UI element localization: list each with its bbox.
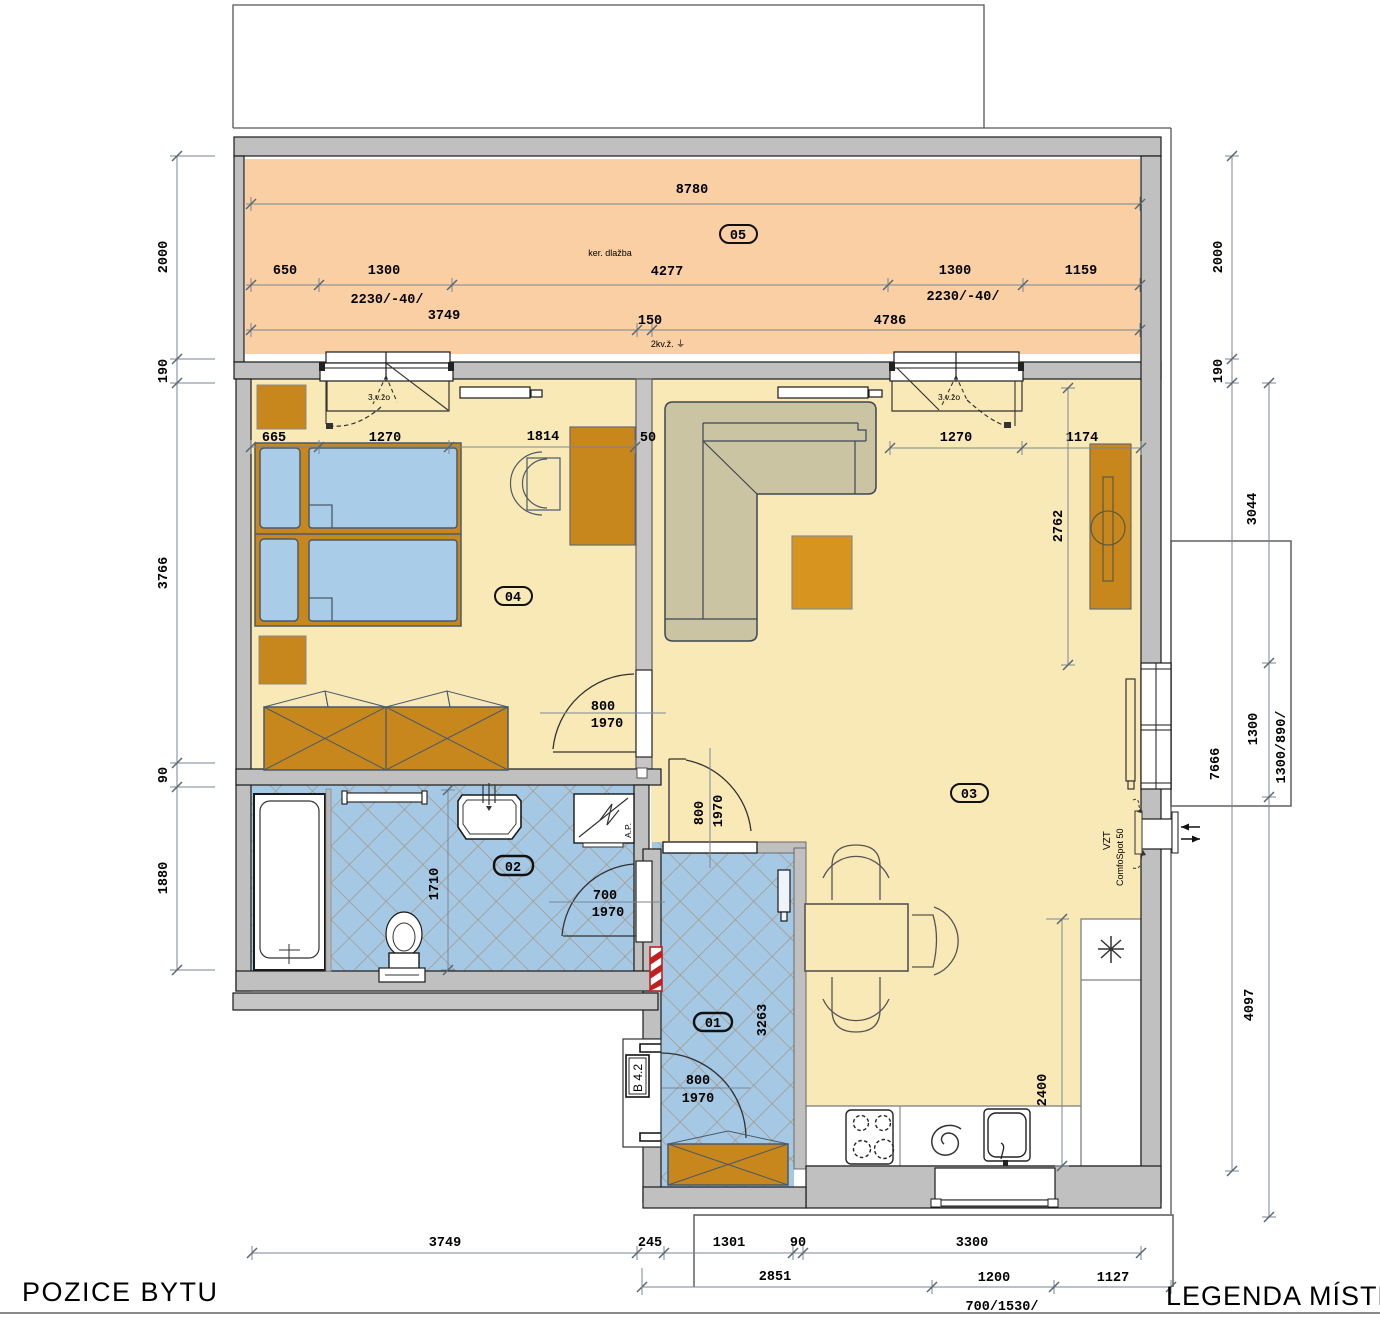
svg-text:POZICE BYTU: POZICE BYTU (22, 1277, 219, 1307)
svg-text:03: 03 (961, 788, 977, 803)
svg-text:05: 05 (730, 229, 746, 244)
svg-text:3263: 3263 (756, 1004, 771, 1036)
svg-text:1300: 1300 (368, 264, 400, 279)
svg-text:B 4.2: B 4.2 (631, 1064, 645, 1092)
svg-text:1970: 1970 (592, 906, 624, 921)
svg-text:LEGENDA MÍSTNOSTÍ: LEGENDA MÍSTNOSTÍ (1166, 1281, 1380, 1311)
svg-text:2851: 2851 (759, 1270, 791, 1285)
svg-text:800: 800 (591, 700, 615, 715)
svg-text:1880: 1880 (157, 862, 172, 894)
svg-text:4097: 4097 (1243, 989, 1258, 1021)
svg-text:8780: 8780 (676, 183, 708, 198)
svg-text:3749: 3749 (428, 309, 460, 324)
svg-text:1300: 1300 (939, 264, 971, 279)
svg-text:2kv.ž. ⏚: 2kv.ž. ⏚ (651, 339, 685, 349)
svg-text:1814: 1814 (527, 430, 559, 445)
svg-text:ComfoSpot 50: ComfoSpot 50 (1115, 828, 1125, 886)
svg-text:1300: 1300 (1247, 713, 1262, 745)
svg-text:1970: 1970 (682, 1092, 714, 1107)
svg-text:04: 04 (505, 591, 521, 606)
svg-text:90: 90 (157, 767, 172, 783)
svg-text:1200: 1200 (978, 1271, 1010, 1286)
svg-text:190: 190 (1212, 359, 1227, 383)
svg-text:50: 50 (640, 431, 656, 446)
svg-text:1270: 1270 (369, 431, 401, 446)
svg-text:ker. dlažba: ker. dlažba (588, 248, 632, 258)
svg-text:1710: 1710 (428, 868, 443, 900)
svg-text:01: 01 (705, 1017, 721, 1032)
svg-text:2762: 2762 (1052, 510, 1067, 542)
svg-text:3300: 3300 (956, 1236, 988, 1251)
svg-text:2000: 2000 (1212, 241, 1227, 273)
svg-text:190: 190 (157, 359, 172, 383)
svg-text:7666: 7666 (1209, 748, 1224, 780)
svg-text:150: 150 (638, 314, 662, 329)
svg-text:650: 650 (273, 264, 297, 279)
svg-text:1301: 1301 (713, 1236, 745, 1251)
svg-text:3749: 3749 (429, 1236, 461, 1251)
svg-text:1174: 1174 (1066, 431, 1098, 446)
svg-text:1300/890/: 1300/890/ (1275, 711, 1290, 784)
svg-text:2230/-40/: 2230/-40/ (351, 293, 424, 308)
svg-text:1970: 1970 (712, 795, 727, 827)
svg-text:3.v.žo: 3.v.žo (368, 392, 390, 402)
svg-text:3.v.žo: 3.v.žo (938, 392, 960, 402)
svg-text:1270: 1270 (940, 431, 972, 446)
svg-text:4786: 4786 (874, 314, 906, 329)
svg-text:800: 800 (693, 801, 708, 825)
svg-text:800: 800 (686, 1074, 710, 1089)
svg-text:4277: 4277 (651, 265, 683, 280)
svg-text:3766: 3766 (157, 557, 172, 589)
svg-text:245: 245 (638, 1236, 662, 1251)
svg-text:1970: 1970 (591, 717, 623, 732)
svg-text:VZT: VZT (1102, 831, 1113, 850)
svg-text:2230/-40/: 2230/-40/ (927, 290, 1000, 305)
svg-text:665: 665 (262, 431, 286, 446)
svg-text:A.P.: A.P. (623, 823, 633, 838)
svg-text:1159: 1159 (1065, 264, 1097, 279)
svg-text:700: 700 (593, 889, 617, 904)
svg-text:1127: 1127 (1097, 1271, 1129, 1286)
svg-text:02: 02 (505, 861, 521, 876)
svg-text:2000: 2000 (157, 241, 172, 273)
svg-text:2400: 2400 (1036, 1074, 1051, 1106)
svg-text:90: 90 (790, 1236, 806, 1251)
svg-text:3044: 3044 (1246, 493, 1261, 525)
